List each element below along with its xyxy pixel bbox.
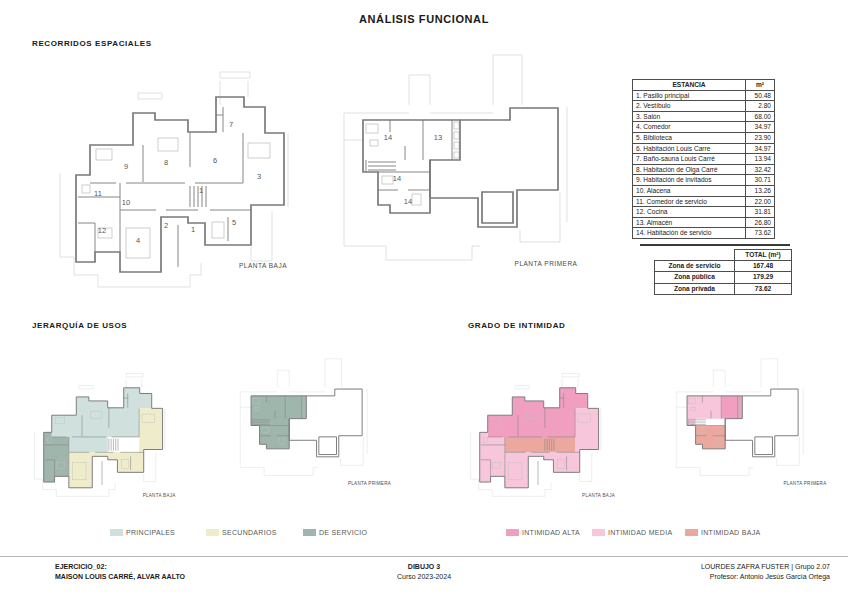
floor-plan-jerarquia-planta-baja: PLANTA BAJA: [22, 358, 182, 501]
furniture-outline: [454, 122, 459, 129]
terrace-outline: [713, 370, 725, 387]
terrace-outline: [144, 453, 156, 482]
terrace-outline: [676, 392, 687, 407]
cell-room-name: 9. Habitación de invitados: [633, 175, 746, 186]
exterior-wall: [430, 108, 558, 227]
legend-swatch: [685, 529, 698, 536]
plan-caption: PLANTA PRIMERA: [515, 260, 578, 267]
cell-area-value: 32.42: [746, 164, 775, 175]
table-row: Zona privada73.62: [655, 283, 792, 294]
furniture-outline: [248, 143, 270, 158]
table-row: 10. Alacena13.26: [633, 185, 775, 196]
legend-item: INTIMIDAD BAJA: [685, 529, 760, 536]
table-row: 3. Salón68.00: [633, 111, 775, 122]
furniture-outline: [158, 138, 178, 151]
terrace-outline: [126, 374, 143, 377]
floor-plan-intimidad-planta-primera: PLANTA PRIMERA: [668, 356, 828, 487]
page-title: ANÁLISIS FUNCIONAL: [0, 13, 848, 25]
room-number-label: 7: [229, 120, 233, 129]
cell-room-name: 10. Alacena: [633, 185, 746, 196]
table-row: 14. Habitación de servicio73.62: [633, 228, 775, 239]
cell-area-value: 26.80: [746, 217, 775, 228]
footer-author-block: LOURDES ZAFRA FUSTER | Grupo 2.07 Profes…: [701, 562, 830, 581]
legend-swatch: [506, 529, 519, 536]
room-number-label: 14: [384, 133, 392, 142]
cell-area-value: 22.00: [746, 196, 775, 207]
floor-plan-recorridos-planta-primera: 14131414PLANTA PRIMERA: [330, 50, 610, 280]
room-number-label: 5: [232, 218, 236, 227]
zone-fill: [505, 452, 580, 487]
furniture-outline: [412, 194, 421, 205]
room-number-label: 10: [122, 198, 130, 207]
table-row: 2. Vestíbulo2.80: [633, 101, 775, 112]
furniture-outline: [454, 132, 459, 139]
exterior-wall: [755, 437, 773, 455]
legend-label: INTIMIDAD BAJA: [701, 529, 760, 536]
room-number-label: 1: [199, 186, 203, 195]
cell-area-value: 73.62: [735, 283, 792, 294]
cell-room-name: Zona privada: [655, 283, 735, 294]
room-number-label: 2: [164, 221, 168, 230]
room-number-label: 11: [94, 189, 102, 198]
table-row: Zona pública179.29: [655, 272, 792, 283]
cell-room-name: 14. Habitación de servicio: [633, 228, 746, 239]
terrace-outline: [220, 72, 250, 78]
terrace-outline: [344, 113, 363, 140]
footer-professor-name: Profesor: Antonio Jesús García Ortega: [701, 572, 830, 582]
table-divider-rule: [640, 244, 790, 246]
cell-room-name: 2. Vestíbulo: [633, 101, 746, 112]
cell-room-name: 8. Habitación de Olga Carré: [633, 164, 746, 175]
terrace-outline: [562, 374, 579, 377]
cell-area-value: 31.81: [746, 207, 775, 218]
room-number-label: 8: [164, 158, 168, 167]
terrace-outline: [340, 437, 363, 465]
empty-cell: [655, 250, 735, 261]
exterior-wall: [76, 97, 284, 272]
cell-room-name: Zona de servicio: [655, 261, 735, 272]
table-row: 6. Habitación Louis Carre34.97: [633, 143, 775, 154]
interior-wall: [689, 419, 706, 426]
cell-room-name: 3. Salón: [633, 111, 746, 122]
room-number-label: 3: [257, 172, 261, 181]
zone-fill: [44, 432, 69, 482]
terrace-outline: [277, 370, 289, 387]
section-title-jerarquia: JERARQUÍA DE USOS: [32, 321, 127, 330]
plan-caption: PLANTA BAJA: [143, 494, 177, 499]
interior-wall: [253, 419, 270, 426]
cell-room-name: 13. Almacén: [633, 217, 746, 228]
analysis-sheet: ANÁLISIS FUNCIONAL RECORRIDOS ESPACIALES…: [0, 0, 848, 600]
cell-area-value: 167.48: [735, 261, 792, 272]
terrace-outline: [580, 453, 592, 482]
furniture-outline: [212, 222, 224, 238]
cell-room-name: 1. Pasillo principal: [633, 90, 746, 101]
interior-wall: [78, 197, 120, 252]
column-header-total: TOTAL (m²): [735, 250, 792, 261]
room-number-label: 14: [404, 197, 412, 206]
room-number-label: 13: [434, 133, 442, 142]
cell-area-value: 2.80: [746, 101, 775, 112]
table-row: 8. Habitación de Olga Carré32.42: [633, 164, 775, 175]
furniture-outline: [82, 185, 90, 193]
cell-room-name: 7. Baño-sauna Louis Carré: [633, 154, 746, 165]
terrace-outline: [240, 392, 251, 407]
room-number-label: 9: [124, 162, 128, 171]
zone-fill: [488, 388, 588, 437]
zone-fill: [721, 396, 742, 419]
legend-intimidad: INTIMIDAD ALTAINTIMIDAD MEDIAINTIMIDAD B…: [0, 529, 848, 541]
floor-plan-recorridos-planta-baja: 9867311110215124PLANTA BAJA: [38, 45, 318, 295]
table-row: 12. Cocina31.81: [633, 207, 775, 218]
furniture-outline: [366, 124, 378, 133]
plan-caption: PLANTA BAJA: [239, 262, 287, 269]
cell-area-value: 30.71: [746, 175, 775, 186]
cell-area-value: 68.00: [746, 111, 775, 122]
cell-area-value: 13.26: [746, 185, 775, 196]
plan-caption: PLANTA BAJA: [582, 494, 616, 499]
section-title-intimidad: GRADO DE INTIMIDAD: [468, 321, 565, 330]
legend-label: INTIMIDAD ALTA: [522, 529, 580, 536]
table-row: 7. Baño-sauna Louis Carré13.94: [633, 154, 775, 165]
furniture-outline: [454, 152, 459, 158]
cell-area-value: 13.94: [746, 154, 775, 165]
terrace-outline: [60, 173, 201, 287]
zone-fill: [505, 437, 575, 452]
zone-fill: [480, 432, 505, 482]
terrace-outline: [776, 437, 799, 465]
cell-area-value: 34.97: [746, 143, 775, 154]
cell-area-value: 34.97: [746, 122, 775, 133]
table-row: 13. Almacén26.80: [633, 217, 775, 228]
legend-item: INTIMIDAD MEDIA: [592, 529, 672, 536]
table-row: Zona de servicio167.48: [655, 261, 792, 272]
legend-item: INTIMIDAD ALTA: [506, 529, 580, 536]
cell-room-name: Zona pública: [655, 272, 735, 283]
footer-student-name: LOURDES ZAFRA FUSTER | Grupo 2.07: [701, 562, 830, 572]
room-number-label: 12: [98, 226, 106, 235]
table-row: 4. Comedor34.97: [633, 122, 775, 133]
room-areas-table: ESTANCIA m² 1. Pasillo principal50.482. …: [632, 79, 775, 239]
cell-area-value: 23.90: [746, 132, 775, 143]
plan-caption: PLANTA PRIMERA: [348, 481, 392, 486]
table-row: 9. Habitación de invitados30.71: [633, 175, 775, 186]
room-number-label: 14: [393, 174, 401, 183]
footer-rule: [0, 556, 848, 557]
table-row: 1. Pasillo principal50.48: [633, 90, 775, 101]
interior-wall: [216, 107, 223, 132]
column-header-m2: m²: [746, 80, 775, 91]
cell-area-value: 179.29: [735, 272, 792, 283]
furniture-outline: [382, 176, 393, 184]
terrace-outline: [325, 359, 342, 387]
terrace-outline: [520, 192, 560, 242]
interior-wall: [366, 160, 396, 172]
cell-room-name: 5. Biblioteca: [633, 132, 746, 143]
cell-room-name: 11. Comedor de servicio: [633, 196, 746, 207]
exterior-wall: [482, 192, 513, 223]
room-number-label: 6: [213, 156, 217, 165]
terrace-outline: [409, 75, 430, 105]
column-header-estancia: ESTANCIA: [633, 80, 746, 91]
zone-fill: [696, 425, 726, 448]
furniture-outline: [96, 149, 112, 160]
cell-area-value: 73.62: [746, 228, 775, 239]
table-row: 11. Comedor de servicio22.00: [633, 196, 775, 207]
room-number-label: 1: [191, 225, 195, 234]
legend-label: INTIMIDAD MEDIA: [608, 529, 672, 536]
terrace-outline: [138, 93, 162, 99]
table-row: 5. Biblioteca23.90: [633, 132, 775, 143]
exterior-wall: [319, 437, 337, 455]
room-number-label: 4: [136, 236, 140, 245]
floor-plan-intimidad-planta-baja: PLANTA BAJA: [458, 358, 618, 501]
cell-room-name: 6. Habitación Louis Carre: [633, 143, 746, 154]
terrace-outline: [251, 211, 272, 261]
plan-caption: PLANTA PRIMERA: [783, 481, 827, 486]
interior-wall: [109, 439, 118, 451]
cell-area-value: 50.48: [746, 90, 775, 101]
interior-wall: [390, 120, 405, 160]
cell-room-name: 4. Comedor: [633, 122, 746, 133]
terrace-outline: [79, 386, 93, 389]
terrace-outline: [761, 359, 778, 387]
legend-swatch: [592, 529, 605, 536]
furniture-outline: [454, 142, 459, 149]
zone-fill: [575, 408, 598, 452]
zone-totals-table: TOTAL (m²) Zona de servicio167.48Zona pú…: [654, 249, 792, 295]
furniture-outline: [370, 140, 378, 146]
cell-room-name: 12. Cocina: [633, 207, 746, 218]
table-header-row: ESTANCIA m²: [633, 80, 775, 91]
floor-plan-jerarquia-planta-primera: PLANTA PRIMERA: [232, 356, 392, 487]
terrace-outline: [515, 386, 529, 389]
totals-header-row: TOTAL (m²): [655, 250, 792, 261]
terrace-outline: [493, 55, 522, 105]
